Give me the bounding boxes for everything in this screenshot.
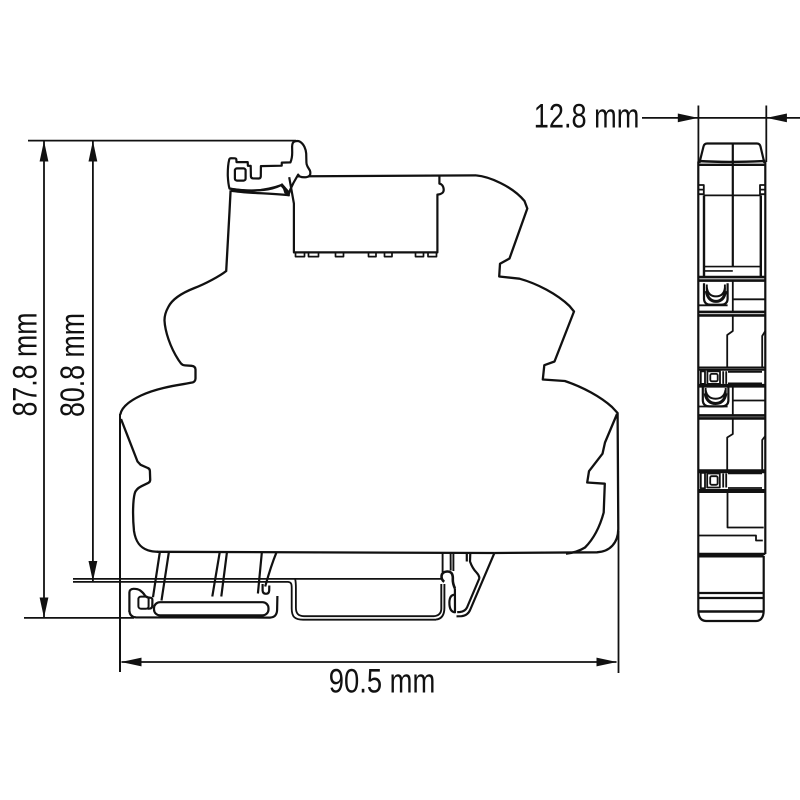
svg-text:87.8 mm: 87.8 mm — [7, 313, 45, 417]
svg-text:90.5 mm: 90.5 mm — [329, 662, 436, 700]
svg-text:12.8 mm: 12.8 mm — [534, 97, 640, 135]
svg-text:80.8 mm: 80.8 mm — [54, 313, 92, 417]
